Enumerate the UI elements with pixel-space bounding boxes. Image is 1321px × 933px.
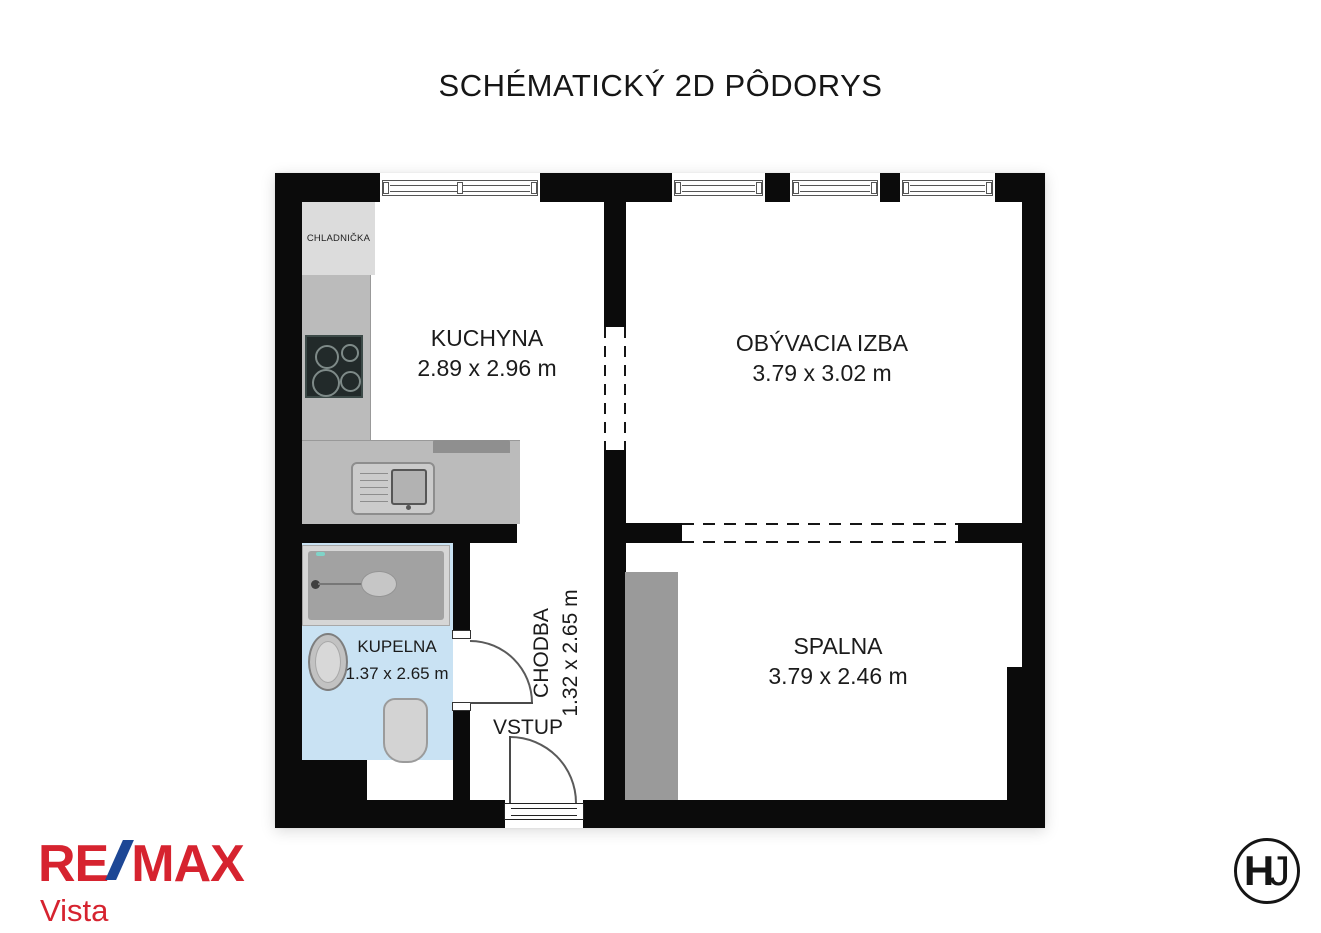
room-label-kuchyna: KUCHYNA 2.89 x 2.96 m (362, 323, 612, 383)
entry-door-frame (504, 803, 584, 820)
room-dims: 1.32 x 2.65 m (556, 573, 585, 733)
bathroom-door (470, 702, 533, 704)
room-name: CHODBA (527, 573, 556, 733)
wall-top-4 (880, 173, 900, 202)
hj-monogram-logo: H J (1234, 838, 1300, 904)
window-jamb (531, 182, 537, 194)
remax-slash-icon (105, 840, 134, 880)
drainboard (360, 473, 388, 507)
entry-label: VSTUP (493, 716, 563, 740)
bathtub-drain (361, 571, 397, 597)
wall-top-3 (765, 173, 790, 202)
bathtub-detail (316, 552, 325, 556)
refrigerator: CHLADNIČKA (302, 202, 375, 275)
kitchen-sink (351, 462, 435, 515)
monogram-letter-j: J (1269, 847, 1290, 895)
entry-door (509, 736, 511, 803)
burner-icon (312, 369, 340, 397)
room-name: KUPELNA (327, 633, 467, 660)
entry-door-swing-arc (510, 736, 577, 803)
bathtub (302, 545, 450, 626)
page: SCHÉMATICKÝ 2D PÔDORYS (0, 0, 1321, 933)
stove (305, 335, 363, 398)
wardrobe (625, 572, 678, 800)
room-label-spalna: SPALNA 3.79 x 2.46 m (688, 631, 988, 691)
page-title: SCHÉMATICKÝ 2D PÔDORYS (0, 68, 1321, 104)
refrigerator-label: CHLADNIČKA (307, 233, 370, 244)
bathroom-door-swing-arc (470, 640, 533, 703)
window-jamb (903, 182, 909, 194)
floor-plan: CHLADNIČKA (275, 173, 1045, 828)
entry-door-frame-lines (511, 808, 577, 816)
wall-living-bedroom-left (604, 523, 682, 543)
remax-office-name: Vista (40, 893, 244, 929)
window-glass (800, 185, 870, 192)
bathtub-spout (318, 583, 362, 585)
room-dims: 3.79 x 3.02 m (672, 358, 972, 388)
wall-bath-hall-lower (453, 703, 470, 800)
wall-kitchen-living-upper (604, 202, 626, 327)
room-dims: 3.79 x 2.46 m (688, 661, 988, 691)
wall-bottom-right (583, 800, 1045, 828)
window-jamb (871, 182, 877, 194)
bathroom-door-jamb (452, 702, 471, 711)
wall-living-bedroom-right (958, 523, 1022, 543)
monogram-letter-h: H (1244, 847, 1271, 895)
wall-bath-hall-upper (453, 543, 470, 638)
window-jamb (675, 182, 681, 194)
burner-icon (340, 371, 361, 392)
wall-center-vertical (604, 450, 626, 800)
room-dims: 1.37 x 2.65 m (327, 660, 467, 687)
room-label-obyvacia-izba: OBÝVACIA IZBA 3.79 x 3.02 m (672, 328, 972, 388)
window-glass (910, 185, 985, 192)
burner-icon (341, 344, 359, 362)
window-living-2 (792, 180, 878, 196)
window-jamb (756, 182, 762, 194)
window-kitchen (382, 180, 538, 196)
bathroom-floor-nook (367, 760, 453, 800)
room-dims: 2.89 x 2.96 m (362, 353, 612, 383)
window-jamb (793, 182, 799, 194)
room-label-kupelna: KUPELNA 1.37 x 2.65 m (327, 633, 467, 687)
toilet (383, 698, 428, 763)
wall-right-upper (1022, 173, 1045, 667)
sink-basin (391, 469, 427, 505)
sink-drain (406, 505, 411, 510)
window-living-3 (902, 180, 993, 196)
room-name: KUCHYNA (362, 323, 612, 353)
window-jamb (383, 182, 389, 194)
remax-logo: RE MAX Vista (38, 838, 244, 929)
wall-left (275, 173, 302, 828)
wall-top-2 (540, 173, 672, 202)
remax-max: MAX (131, 838, 244, 890)
remax-wordmark: RE MAX (38, 838, 244, 890)
window-mullion (457, 182, 463, 194)
room-label-chodba: CHODBA 1.32 x 2.65 m (527, 573, 587, 733)
kitchen-appliance (433, 440, 510, 453)
wall-kitchen-hall (275, 523, 517, 543)
window-living-1 (674, 180, 763, 196)
window-glass (682, 185, 755, 192)
remax-re: RE (38, 838, 108, 890)
burner-icon (315, 345, 339, 369)
window-jamb (986, 182, 992, 194)
room-name: SPALNA (688, 631, 988, 661)
room-name: OBÝVACIA IZBA (672, 328, 972, 358)
